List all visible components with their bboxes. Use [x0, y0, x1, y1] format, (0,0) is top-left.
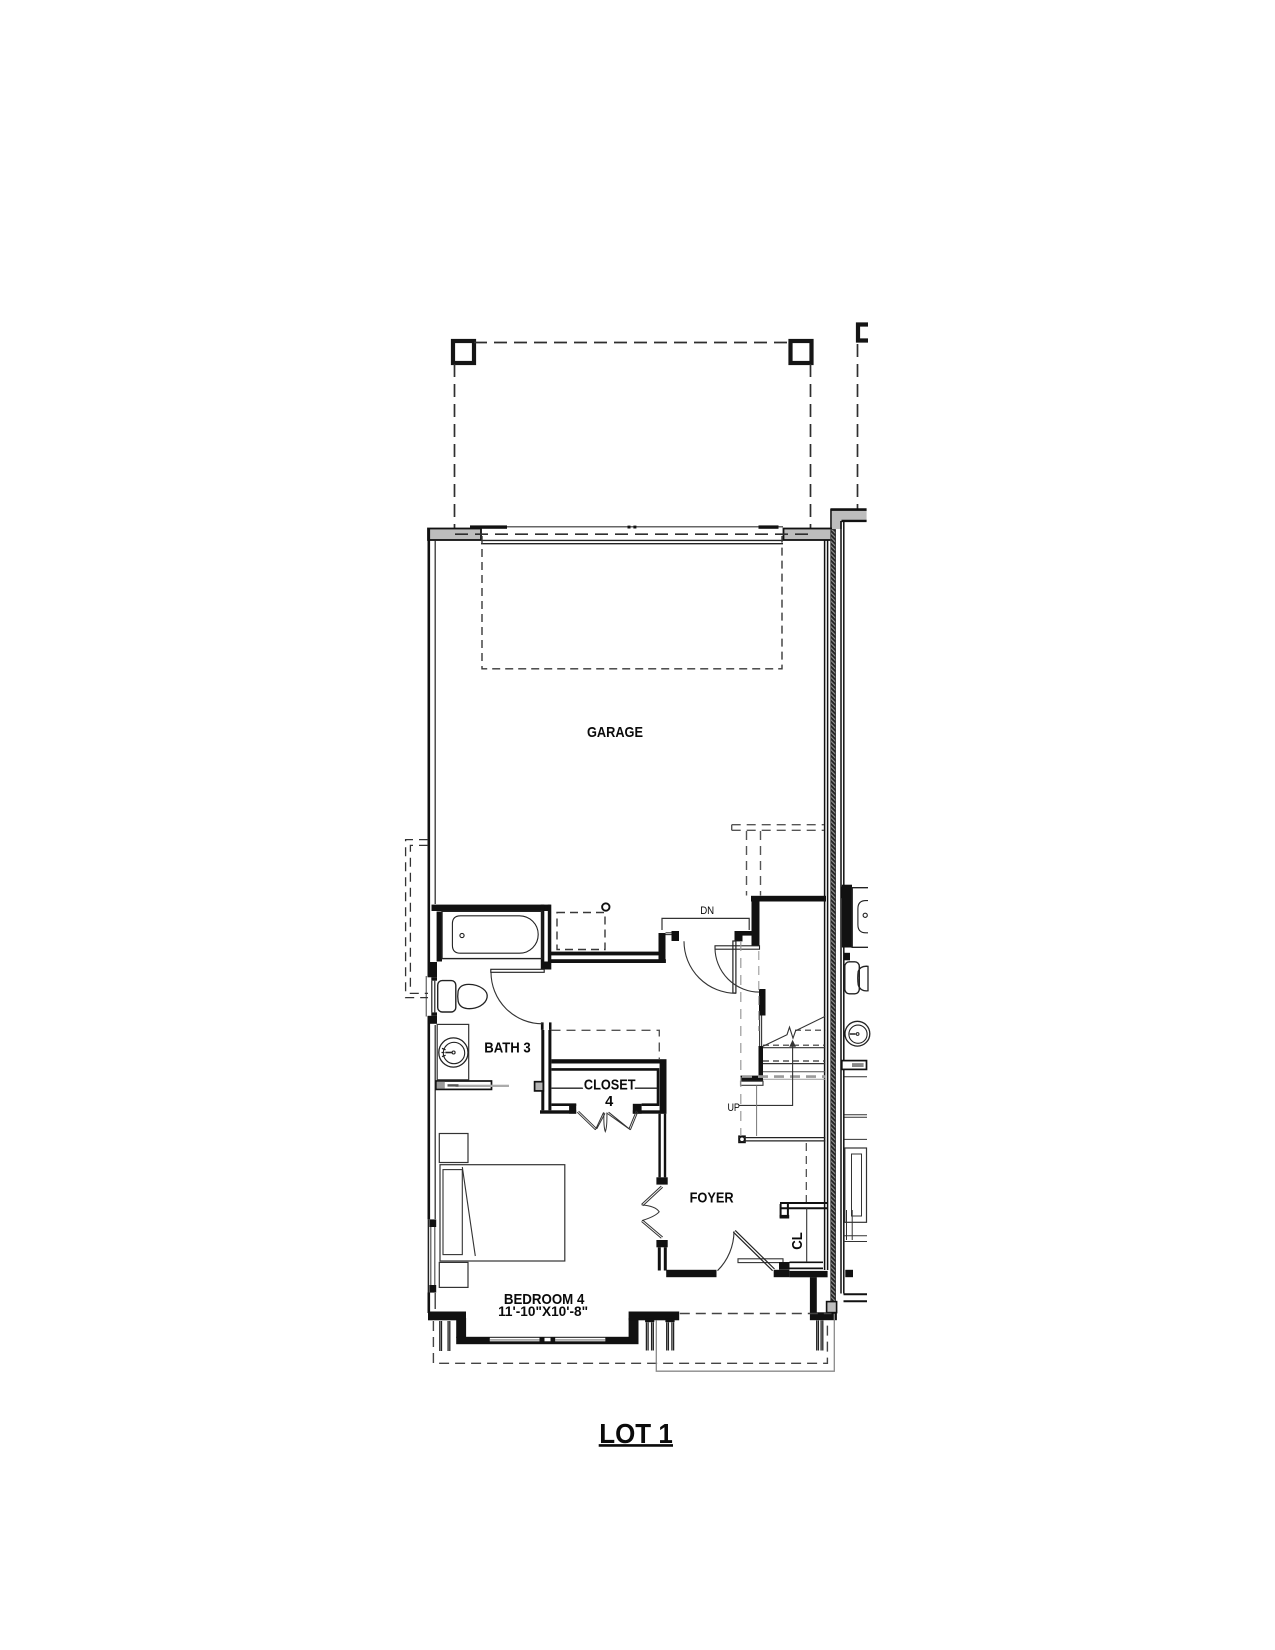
- svg-text:FOYER: FOYER: [690, 1190, 734, 1206]
- svg-text:CL: CL: [790, 1232, 806, 1250]
- svg-text:DN: DN: [700, 905, 714, 917]
- svg-text:CLOSET: CLOSET: [584, 1078, 636, 1094]
- svg-text:11'-10"X10'-8": 11'-10"X10'-8": [498, 1303, 588, 1319]
- svg-text:BATH 3: BATH 3: [484, 1041, 531, 1057]
- svg-text:UP: UP: [727, 1102, 740, 1114]
- svg-text:GARAGE: GARAGE: [587, 725, 643, 741]
- svg-text:4: 4: [605, 1094, 614, 1110]
